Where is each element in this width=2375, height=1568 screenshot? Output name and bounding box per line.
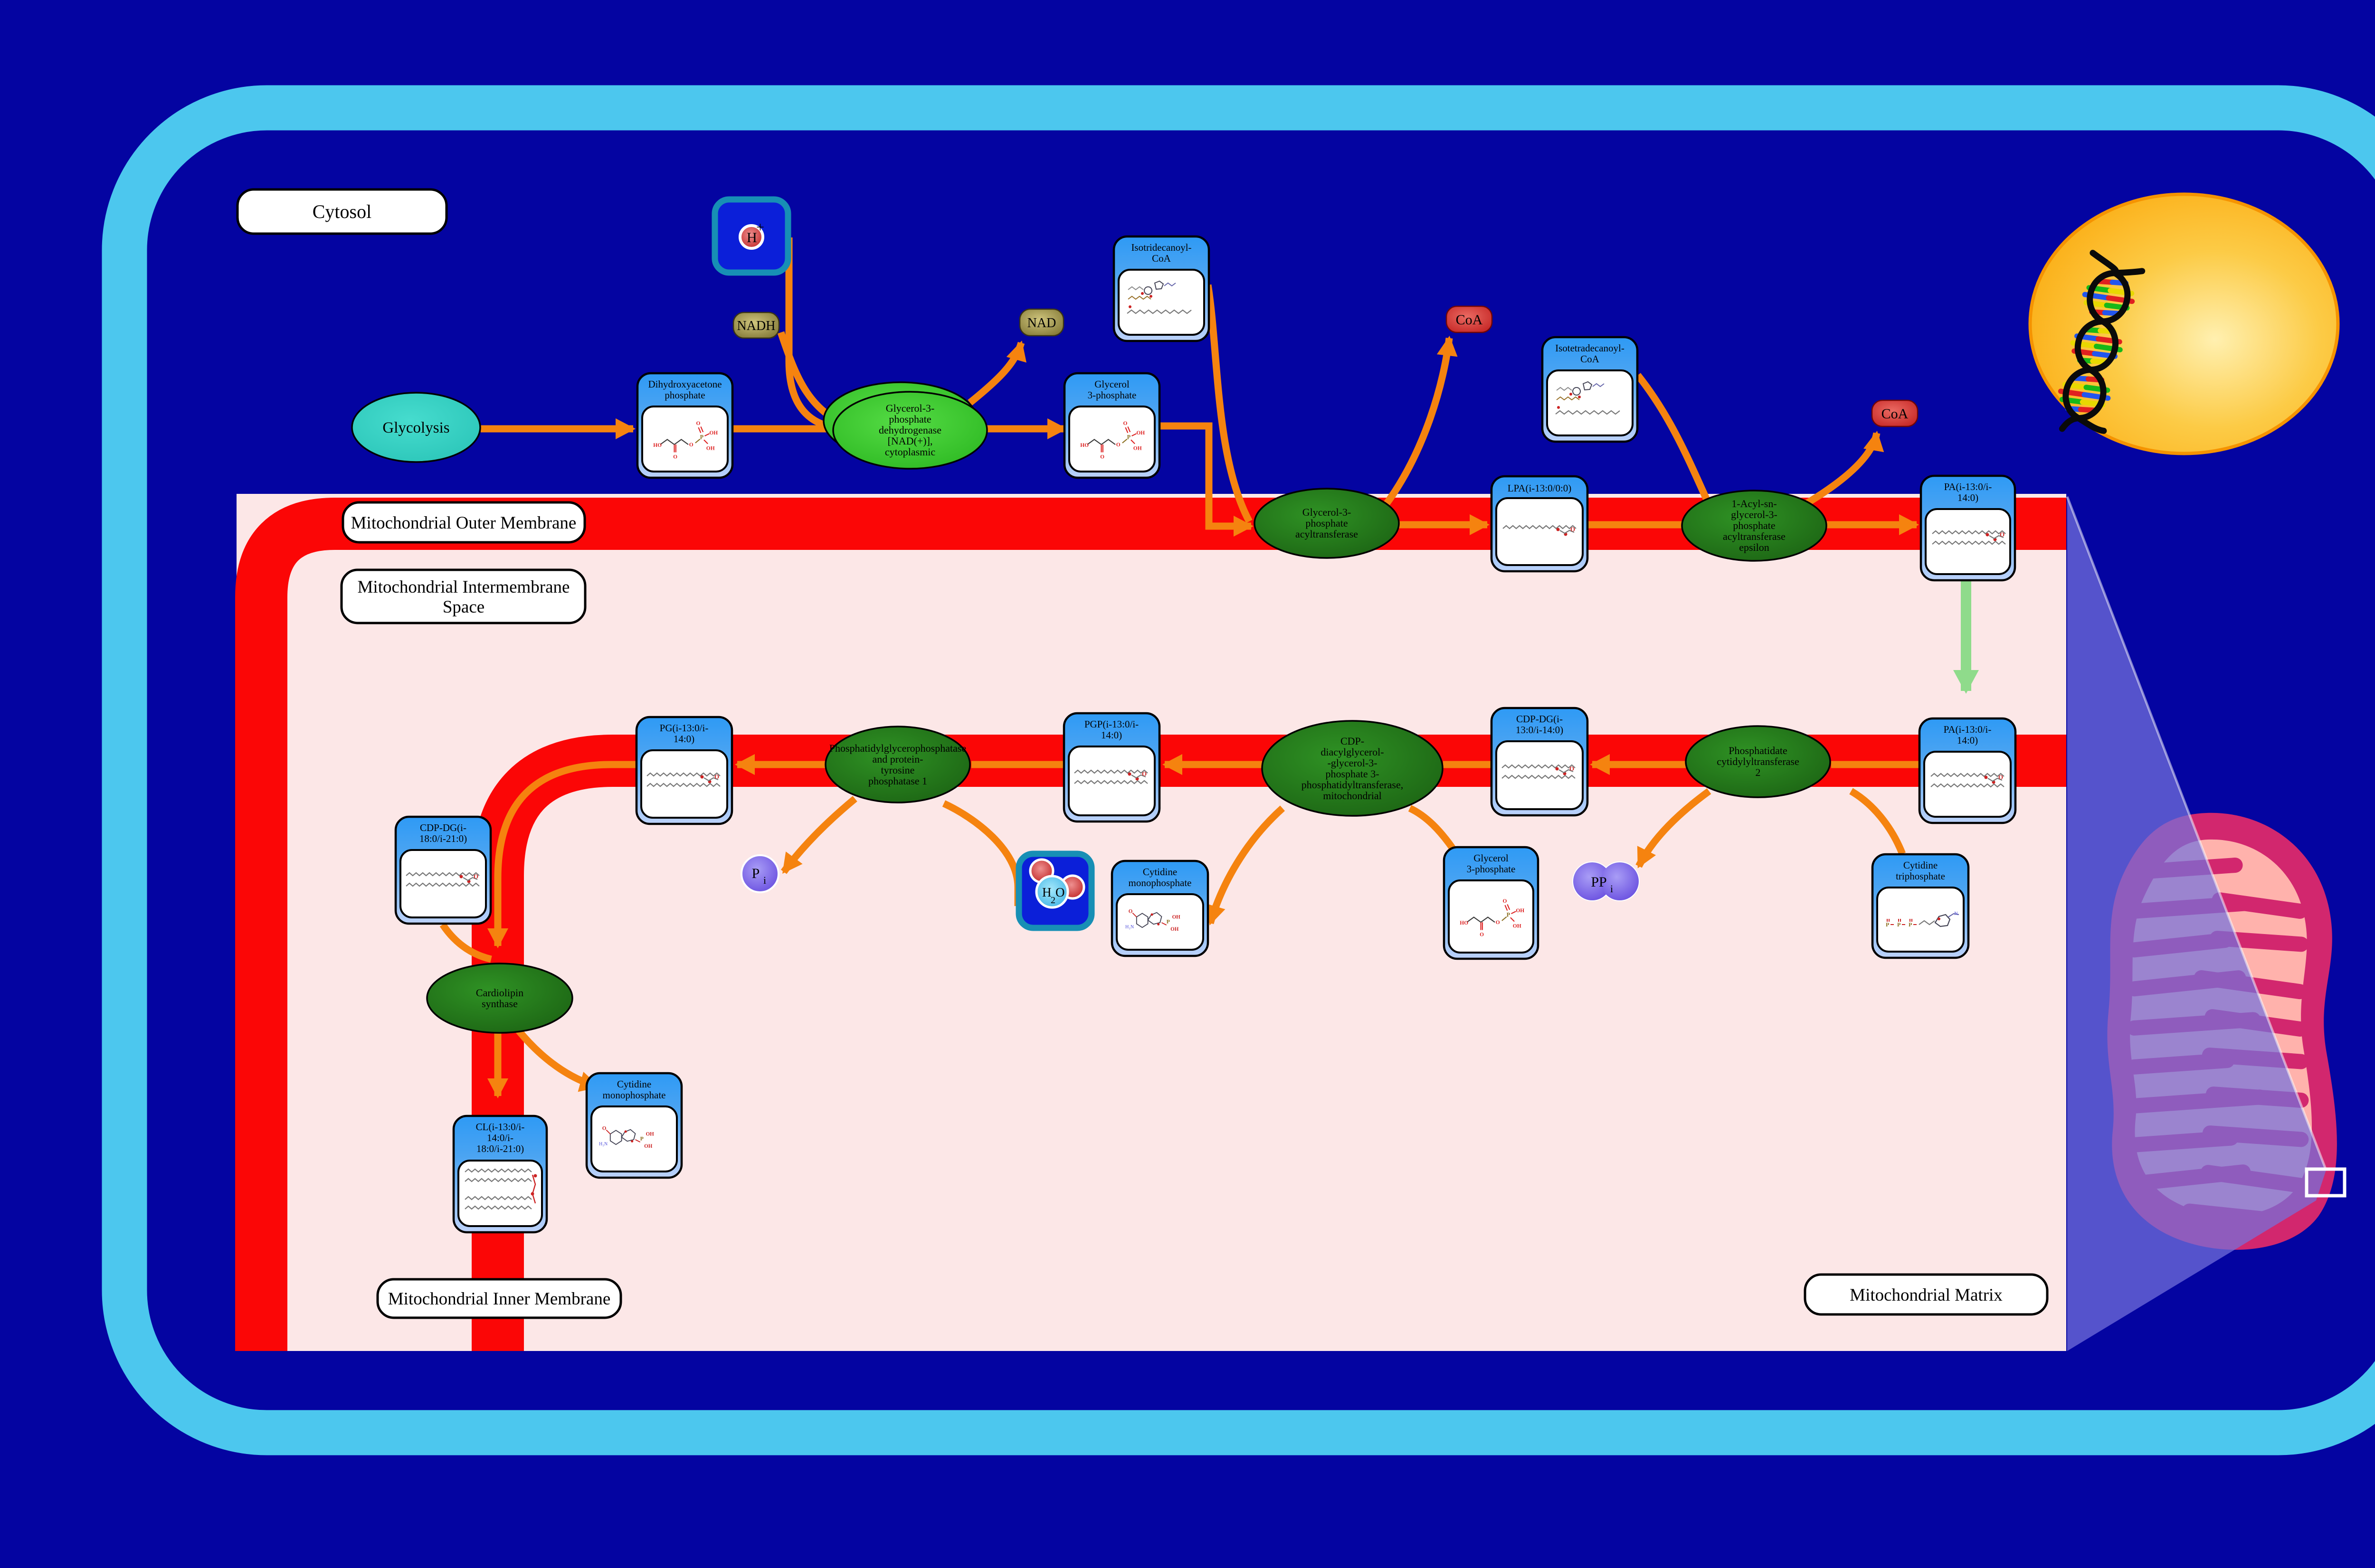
svg-text:P: P [1507,912,1510,918]
svg-text:triphosphate: triphosphate [1896,870,1945,882]
svg-text:i: i [1610,883,1613,895]
svg-text:O: O [1502,898,1507,904]
svg-text:H: H [1042,885,1052,899]
svg-text:PA(i-13:0/i-: PA(i-13:0/i- [1944,724,1992,735]
svg-text:O: O [474,873,478,880]
svg-text:P: P [1897,921,1900,928]
svg-text:O: O [1570,526,1575,533]
svg-text:H₂N: H₂N [1125,925,1134,930]
svg-text:2: 2 [1756,766,1761,778]
svg-text:LPA(i-13:0/0:0): LPA(i-13:0/0:0) [1508,482,1572,494]
svg-text:14:0): 14:0) [674,733,694,745]
svg-text:Glycerol-3-: Glycerol-3- [1302,506,1351,518]
svg-text:monophosphate: monophosphate [1129,877,1192,888]
svg-text:P: P [1909,921,1912,928]
svg-text:H₂N: H₂N [599,1142,608,1147]
svg-text:HO: HO [1460,920,1468,926]
svg-text:Mitochondrial Inner Membrane: Mitochondrial Inner Membrane [388,1289,611,1309]
svg-text:Mitochondrial Matrix: Mitochondrial Matrix [1850,1285,2003,1305]
svg-text:CL(i-13:0/i-: CL(i-13:0/i- [476,1121,525,1133]
svg-text:phosphate: phosphate [1305,517,1348,529]
svg-text:OH: OH [1133,446,1142,452]
svg-text:O: O [1480,932,1484,938]
svg-text:cytidylyltransferase: cytidylyltransferase [1717,756,1799,767]
svg-text:acyltransferase: acyltransferase [1295,528,1358,540]
svg-text:PG(i-13:0/i-: PG(i-13:0/i- [660,722,709,734]
svg-text:Phosphatidylglycerophosphatase: Phosphatidylglycerophosphatase [829,742,966,754]
svg-text:O: O [602,1126,607,1132]
svg-text:O: O [1496,920,1500,926]
svg-text:OH: OH [1136,430,1145,436]
svg-text:O: O [1055,885,1065,899]
svg-text:cytoplasmic: cytoplasmic [885,446,936,458]
svg-text:Dihydroxyacetone: Dihydroxyacetone [648,378,722,390]
svg-text:tyrosine: tyrosine [881,764,915,776]
svg-text:CoA: CoA [1881,406,1909,422]
svg-text:OH: OH [646,1131,655,1137]
svg-text:Glycerol: Glycerol [1473,852,1509,864]
svg-text:PP: PP [1591,874,1606,890]
svg-text:CDP-: CDP- [1340,735,1364,747]
svg-text:OH: OH [1170,926,1179,932]
svg-text:phosphate: phosphate [889,413,931,425]
svg-text:Cytidine: Cytidine [1903,860,1938,871]
svg-text:O: O [673,454,677,460]
svg-text:Isotetradecanoyl-: Isotetradecanoyl- [1555,342,1624,354]
svg-text:HO: HO [1080,443,1089,448]
svg-text:PGP(i-13:0/i-: PGP(i-13:0/i- [1084,718,1139,730]
svg-text:13:0/i-14:0): 13:0/i-14:0) [1516,724,1563,736]
svg-text:O: O [1129,909,1133,915]
svg-text:-glycerol-3-: -glycerol-3- [1327,757,1377,769]
svg-text:NADH: NADH [737,319,776,333]
svg-text:Mitochondrial Outer Membrane: Mitochondrial Outer Membrane [351,513,577,533]
svg-text:P: P [640,1135,644,1142]
svg-text:Isotridecanoyl-: Isotridecanoyl- [1131,242,1191,253]
svg-text:OH: OH [706,446,715,452]
svg-text:PA(i-13:0/i-: PA(i-13:0/i- [1944,481,1992,492]
svg-text:14:0): 14:0) [1101,729,1122,741]
svg-text:phosphate 3-: phosphate 3- [1325,768,1379,780]
svg-text:O: O [1142,770,1147,777]
svg-text:O: O [689,442,693,448]
svg-text:Glycerol: Glycerol [1094,378,1130,390]
svg-text:phosphatidyltransferase,: phosphatidyltransferase, [1301,779,1403,791]
svg-text:Cytidine: Cytidine [617,1078,651,1090]
svg-text:phosphatase 1: phosphatase 1 [868,775,927,787]
svg-text:OH: OH [644,1143,653,1149]
svg-text:P: P [700,434,704,441]
svg-text:P: P [1127,434,1131,441]
svg-text:O: O [1116,442,1121,448]
svg-text:O: O [2000,531,2004,538]
svg-text:OH: OH [1172,914,1181,920]
svg-text:HO: HO [653,443,662,448]
svg-text:acyltransferase: acyltransferase [1723,530,1786,542]
svg-text:NAD: NAD [1027,316,1056,331]
svg-text:mitochondrial: mitochondrial [1323,790,1381,802]
svg-text:Phosphatidate: Phosphatidate [1729,745,1787,756]
svg-text:H: H [747,230,757,246]
svg-text:O: O [1998,774,2003,781]
svg-text:synthase: synthase [482,998,518,1010]
svg-text:P: P [1886,921,1889,928]
svg-text:14:0): 14:0) [1957,735,1978,746]
svg-text:3-phosphate: 3-phosphate [1088,389,1137,401]
svg-text:18:0/i-21:0): 18:0/i-21:0) [476,1143,524,1154]
svg-text:Cytosol: Cytosol [313,201,371,222]
svg-text:3-phosphate: 3-phosphate [1467,863,1516,875]
svg-text:CoA: CoA [1152,253,1171,264]
svg-text:O: O [1123,421,1127,426]
svg-text:OH: OH [1513,924,1521,929]
svg-text:i: i [763,874,766,886]
svg-text:CDP-DG(i-: CDP-DG(i- [1516,713,1563,725]
svg-text:phosphate: phosphate [1733,520,1775,531]
svg-text:+: + [756,219,764,235]
svg-text:O: O [714,773,719,780]
svg-text:dehydrogenase: dehydrogenase [879,424,941,436]
svg-text:2: 2 [1051,895,1055,906]
svg-text:O: O [1569,765,1574,772]
svg-text:[NAD(+)],: [NAD(+)], [888,435,933,447]
svg-text:CoA: CoA [1580,353,1600,365]
svg-text:Space: Space [443,597,484,617]
svg-text:O: O [1100,454,1104,460]
svg-text:CDP-DG(i-: CDP-DG(i- [420,822,466,833]
svg-text:Mitochondrial Intermembrane: Mitochondrial Intermembrane [358,577,570,597]
svg-text:Cytidine: Cytidine [1143,866,1177,878]
svg-text:phosphate: phosphate [665,389,705,401]
svg-text:CoA: CoA [1456,312,1483,328]
svg-text:Glycerol-3-: Glycerol-3- [886,402,935,414]
svg-text:Cardiolipin: Cardiolipin [476,987,523,999]
svg-text:OH: OH [709,430,718,436]
svg-text:diacylglycerol-: diacylglycerol- [1320,746,1384,758]
svg-text:P: P [752,866,760,881]
svg-text:O: O [696,421,700,426]
svg-text:14:0): 14:0) [1957,492,1978,503]
svg-text:1-Acyl-sn-: 1-Acyl-sn- [1731,498,1776,510]
svg-text:epsilon: epsilon [1739,541,1769,553]
svg-text:glycerol-3-: glycerol-3- [1731,509,1777,520]
svg-text:14:0/i-: 14:0/i- [487,1132,513,1143]
svg-text:OH: OH [1516,908,1524,914]
svg-text:18:0/i-21:0): 18:0/i-21:0) [419,833,467,844]
svg-text:and protein-: and protein- [873,753,923,765]
svg-text:N: N [1954,911,1958,916]
svg-text:P: P [1167,918,1170,925]
svg-text:Glycolysis: Glycolysis [382,419,449,436]
svg-text:monophosphate: monophosphate [603,1089,666,1101]
